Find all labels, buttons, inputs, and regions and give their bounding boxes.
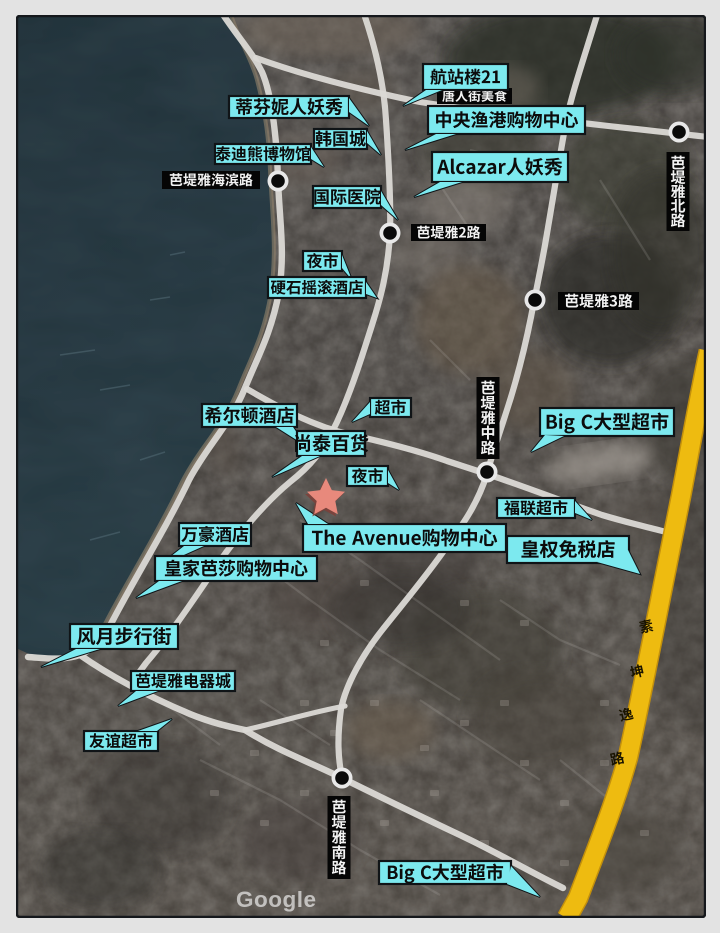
svg-text:Google: Google — [236, 887, 317, 912]
